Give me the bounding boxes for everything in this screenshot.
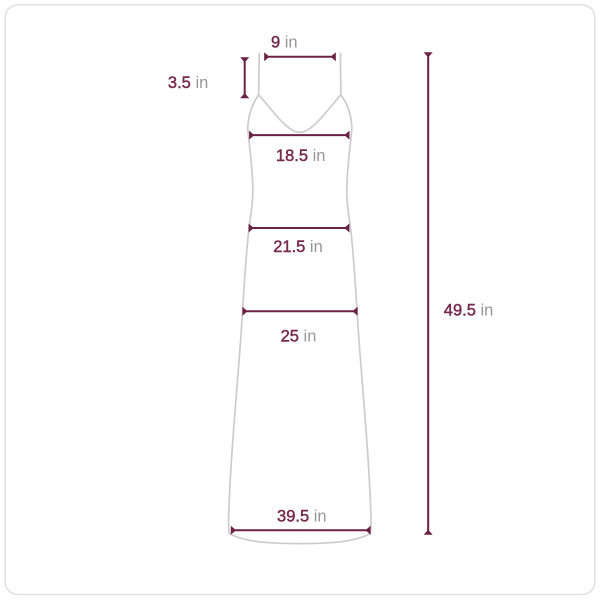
svg-text:9 in: 9 in	[271, 34, 298, 52]
svg-text:18.5 in: 18.5 in	[276, 147, 326, 165]
svg-text:39.5 in: 39.5 in	[277, 507, 327, 525]
svg-text:3.5 in: 3.5 in	[168, 74, 208, 92]
svg-text:25 in: 25 in	[281, 328, 317, 346]
svg-text:21.5 in: 21.5 in	[273, 238, 323, 256]
svg-text:49.5 in: 49.5 in	[444, 301, 494, 319]
